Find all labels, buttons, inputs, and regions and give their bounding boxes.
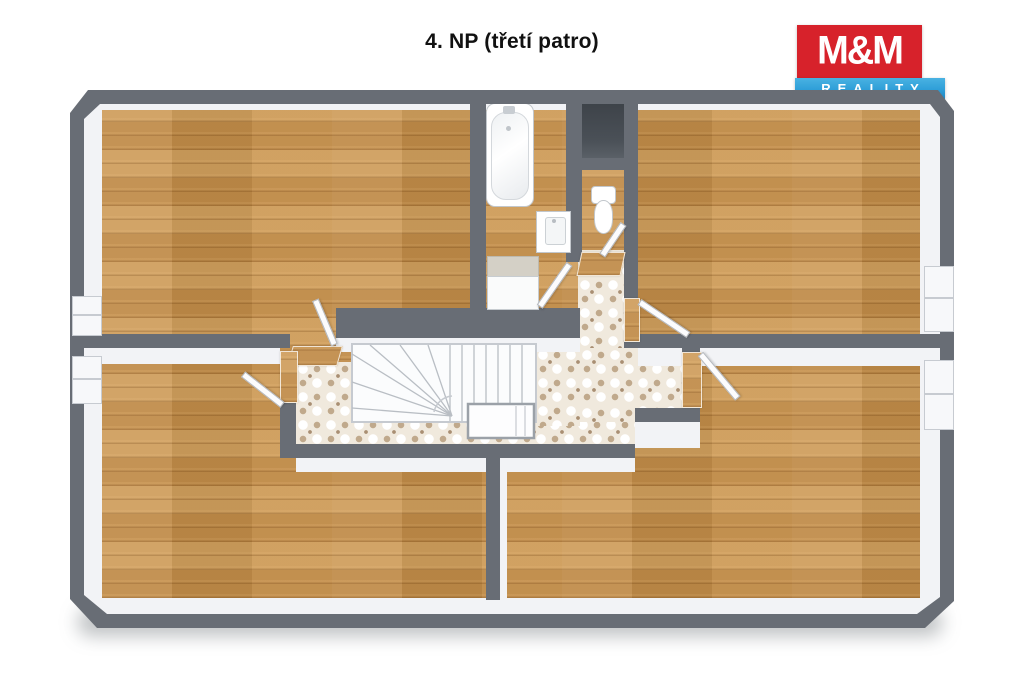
- hallway-tile-patch: [580, 406, 635, 422]
- window-left-top: [72, 296, 102, 336]
- window-mullion: [73, 378, 101, 380]
- window-left-bottom: [72, 356, 102, 404]
- threshold-bottom-left-room: [280, 351, 298, 403]
- wall-face: [700, 348, 940, 366]
- window-mullion: [925, 393, 953, 395]
- wall-nook-south: [635, 408, 700, 422]
- window-mullion: [73, 314, 101, 316]
- wall-left-divider: [84, 334, 290, 348]
- wall-face: [84, 348, 280, 364]
- toilet-bowl: [594, 200, 613, 234]
- bathtub-drain: [506, 126, 511, 131]
- bathtub-faucet: [503, 106, 515, 114]
- wall-stair-north: [336, 308, 580, 338]
- floorplan-page: 4. NP (třetí patro) M&M REALITY: [0, 0, 1024, 682]
- logo-red-box: M&M: [797, 25, 922, 78]
- window-right-bottom: [924, 360, 954, 430]
- wall-bottom-divider: [486, 458, 500, 600]
- hallway-tile-mid: [536, 348, 580, 426]
- window-mullion: [925, 297, 953, 299]
- staircase: [348, 338, 538, 444]
- threshold-bottom-right-room: [682, 352, 702, 408]
- wall-shaft-south: [578, 156, 625, 170]
- wall-face: [635, 422, 700, 448]
- wall-corridor-east-upper: [624, 97, 638, 298]
- shower-tray: [487, 276, 539, 310]
- logo-mm-text: M&M: [817, 29, 902, 74]
- threshold-wc: [576, 252, 625, 276]
- shaft-void: [582, 98, 624, 158]
- brand-logo: M&M REALITY: [795, 25, 945, 101]
- wall-face: [500, 458, 507, 598]
- wall-face: [296, 458, 635, 472]
- wall-hall-south: [280, 444, 635, 458]
- window-right-top: [924, 266, 954, 332]
- wall-bathroom-west: [470, 97, 486, 312]
- washbasin-tap: [552, 219, 556, 223]
- bathtub-basin: [491, 112, 529, 200]
- shower-wall-tiles: [487, 256, 539, 278]
- wall-face: [638, 348, 682, 366]
